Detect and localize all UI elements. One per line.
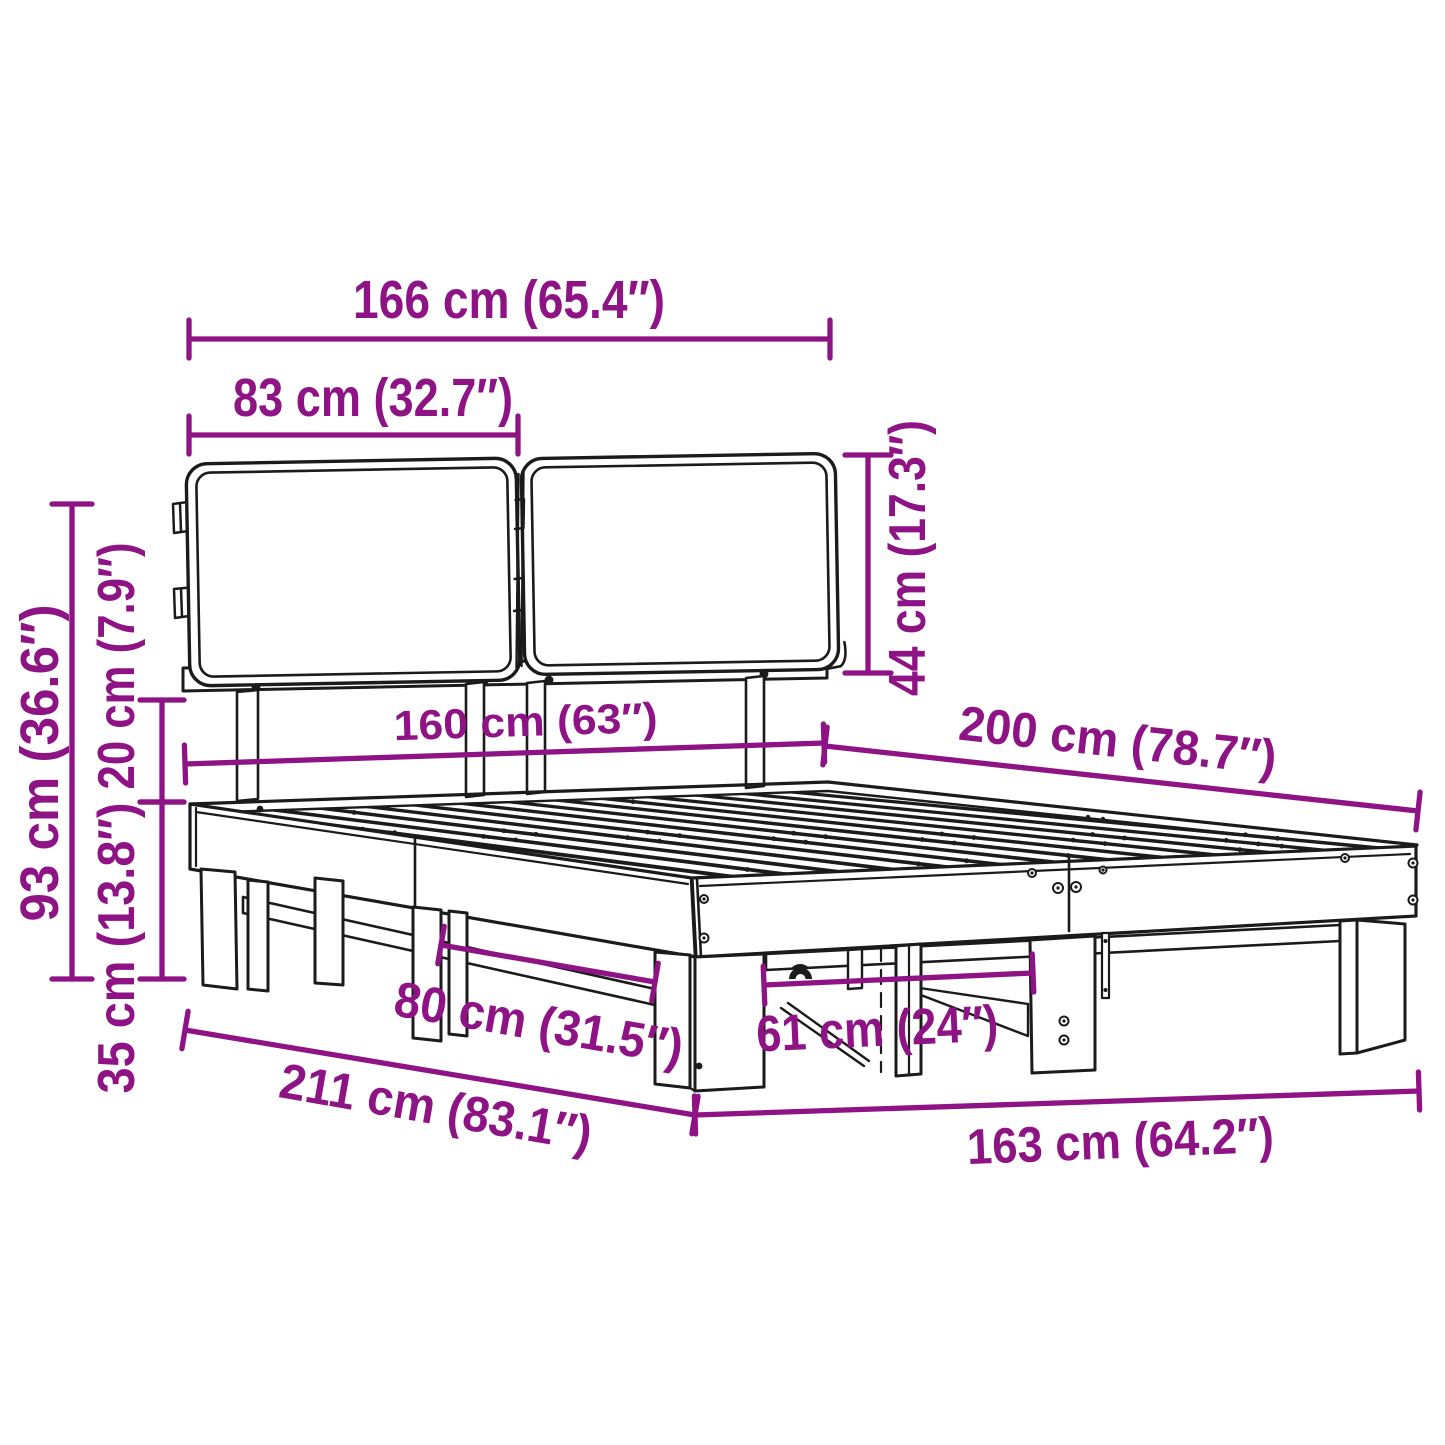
svg-text:35 cm (13.8″): 35 cm (13.8″) [88, 803, 146, 1094]
svg-text:83 cm (32.7″): 83 cm (32.7″) [233, 368, 513, 428]
svg-text:166 cm (65.4″): 166 cm (65.4″) [353, 270, 665, 330]
svg-text:61 cm (24″): 61 cm (24″) [755, 995, 999, 1063]
svg-text:160 cm (63″): 160 cm (63″) [393, 694, 658, 749]
svg-text:93 cm (36.6″): 93 cm (36.6″) [10, 605, 70, 922]
svg-text:44 cm (17.3″): 44 cm (17.3″) [879, 420, 937, 696]
svg-text:20 cm (7.9″): 20 cm (7.9″) [88, 543, 146, 790]
